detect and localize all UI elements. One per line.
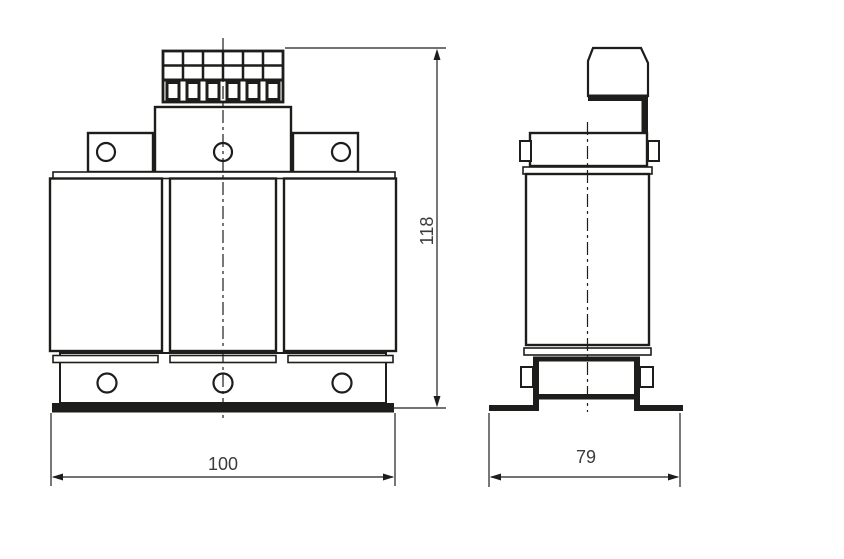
depth-dimension: 79: [489, 413, 680, 487]
terminal-slot: [167, 83, 179, 100]
side-bottom-clamp-bottom-bar: [533, 394, 640, 400]
terminal-slot: [227, 83, 239, 100]
mounting-hole-bottom-right: [333, 374, 352, 393]
dimension-arrow-left: [490, 474, 501, 481]
width-dimension: 100: [51, 413, 395, 486]
coil-right: [284, 179, 396, 352]
mounting-hole-bottom-left: [98, 374, 117, 393]
terminal-slot: [267, 83, 279, 100]
foot-flange-right: [634, 405, 683, 411]
dimension-label-depth: 79: [576, 447, 596, 467]
terminal-slot: [187, 83, 199, 100]
dimension-label-width: 100: [208, 454, 238, 474]
mounting-hole-top-left: [97, 143, 115, 161]
technical-drawing-canvas: 118 100 79: [0, 0, 844, 559]
dimension-arrow-down: [434, 396, 441, 407]
front-view: [50, 38, 396, 418]
mounting-hole-top-right: [332, 143, 350, 161]
drawing-page: 118 100 79: [0, 0, 844, 559]
side-top-clamp: [530, 133, 647, 166]
dimension-arrow-right: [383, 474, 394, 481]
side-top-tab-left: [520, 141, 531, 161]
terminal-cover-base-bar: [588, 95, 648, 102]
terminal-slot: [247, 83, 259, 100]
dimension-arrow-up: [434, 49, 441, 60]
side-top-tab-right: [648, 141, 659, 161]
foot-flange-left: [489, 405, 539, 411]
bottom-clamp-slot-left: [53, 356, 158, 363]
coil-left: [50, 179, 162, 352]
side-bottom-tab-left: [521, 367, 533, 387]
terminal-slot: [207, 83, 219, 100]
terminal-cover: [588, 48, 648, 96]
side-view: [489, 48, 683, 412]
side-bottom-clamp-top-bar: [533, 357, 640, 362]
dimension-arrow-left: [52, 474, 63, 481]
side-bottom-tab-right: [640, 367, 653, 387]
dimension-arrow-right: [668, 474, 679, 481]
dimension-label-height: 118: [417, 217, 437, 246]
bottom-clamp-slot-right: [288, 356, 393, 363]
